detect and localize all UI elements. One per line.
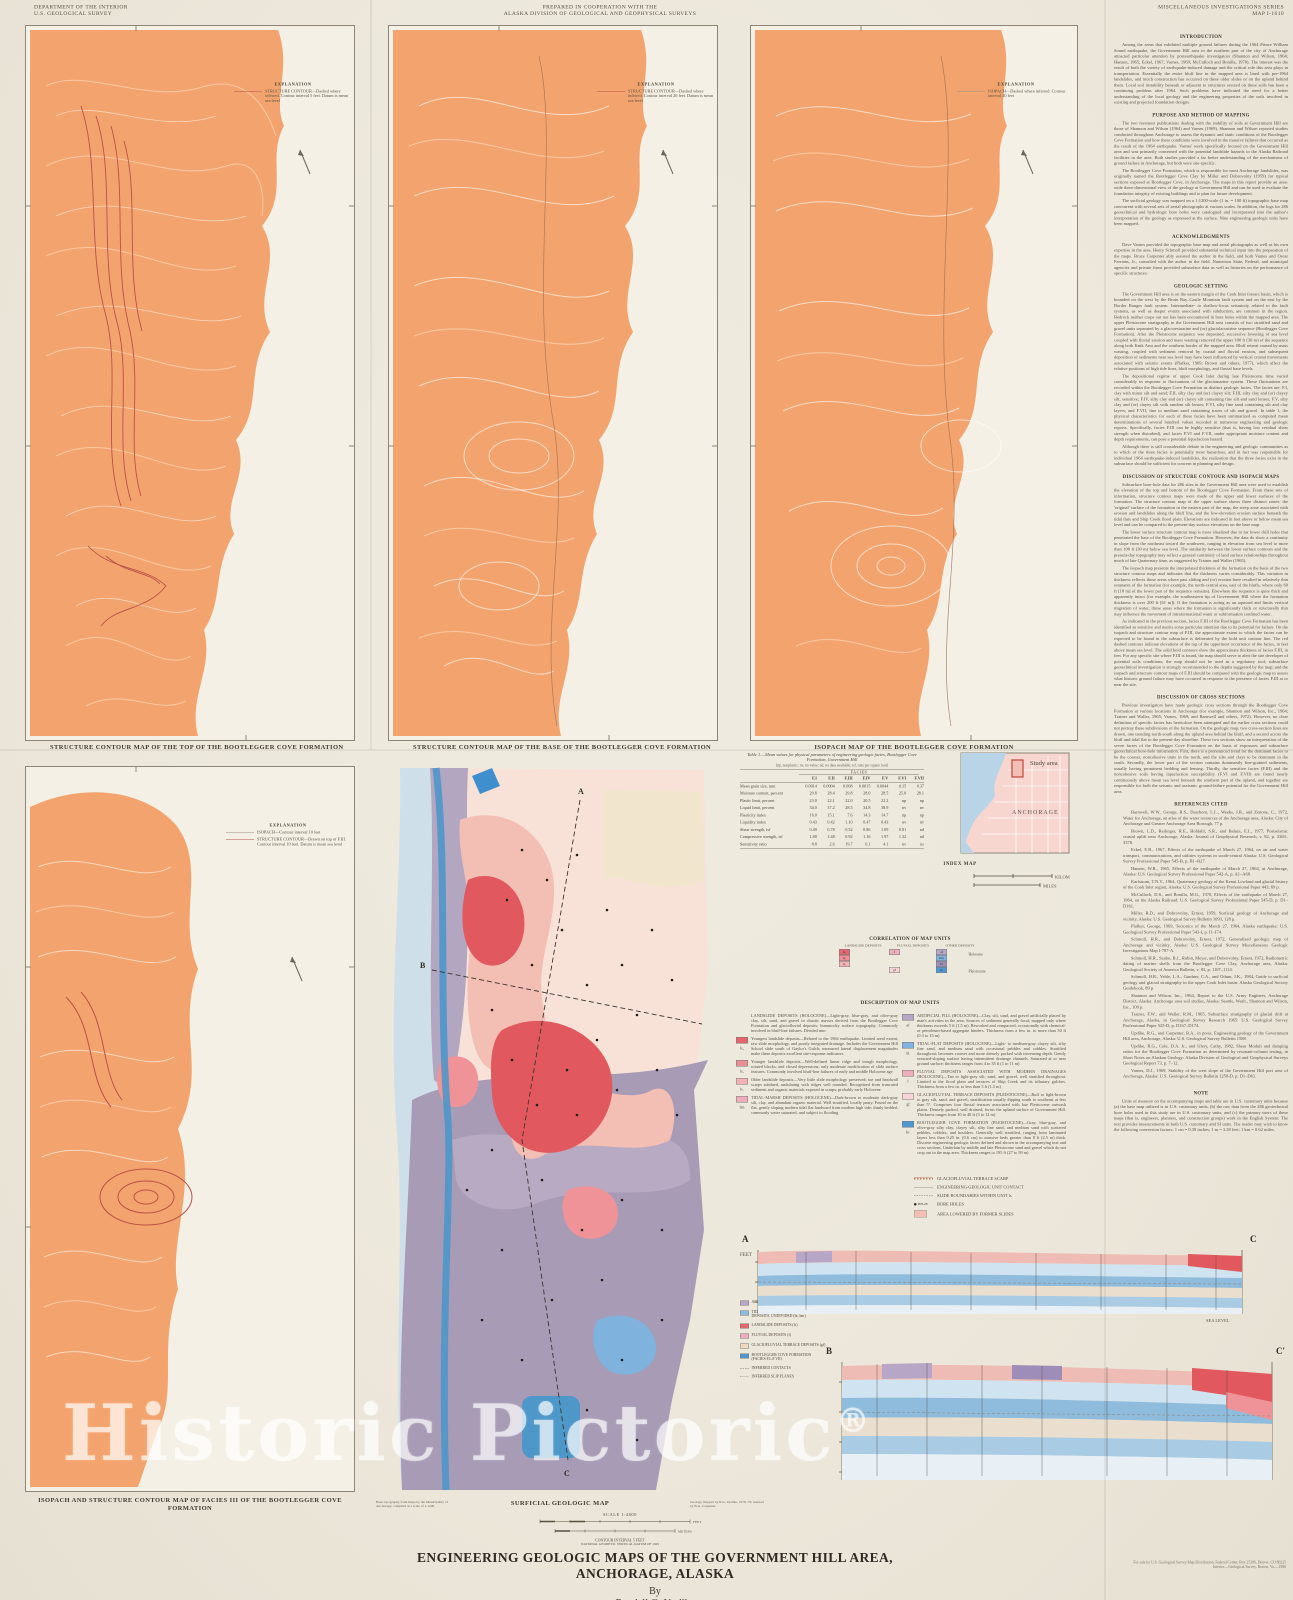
cs-legend-entry: FLUVIAL DEPOSITS (f): [740, 1333, 826, 1339]
map-number: MAP I-1610: [1000, 11, 1284, 18]
explanation-text: STRUCTURE CONTOUR—Dashed where inferred.…: [262, 89, 352, 103]
map4-graphic: [26, 767, 354, 1491]
unit-chip: [902, 1121, 914, 1128]
cs-legend-entry: GLACIOFLUVIAL TERRACE DEPOSITS (gf): [740, 1343, 826, 1349]
unit-symbol: gf: [902, 1102, 914, 1107]
section-paragraph: The isopach map presents the interpolate…: [1114, 565, 1288, 617]
bore-hole-id: BH-28: [918, 1202, 928, 1206]
legend-label: BORE HOLES: [937, 1202, 964, 1207]
structure-contour-base-map: EXPLANATION STRUCTURE CONTOUR—Dashed whe…: [388, 25, 718, 741]
reference-entry: Schmoll, H.R., Yehle, L.A., Gardner, C.A…: [1114, 974, 1288, 991]
legend-lowered-area: AREA LOWERED BY FORMER SLIDES: [914, 1210, 1084, 1218]
reference-entry: Shannon and Wilson, Inc., 1964, Report t…: [1114, 993, 1288, 1010]
index-map: Study area ANCHORAGE INDEX MAP KILOMETER…: [960, 752, 1125, 897]
table1-note: [np, nonplastic; nv, no value; nd, no da…: [740, 763, 924, 768]
unit-chip: [740, 1343, 749, 1348]
svg-text:METERS: METERS: [678, 1530, 692, 1534]
unit-symbol: af: [902, 1023, 914, 1028]
cross-section-1: A C FEET SEA LEVEL: [736, 1226, 1264, 1331]
reference-entry: Plafker, George, 1969, Tectonics of the …: [1114, 924, 1288, 936]
sea-level-label: SEA LEVEL: [1206, 1318, 1230, 1323]
city-label: ANCHORAGE: [1012, 810, 1059, 816]
legend-contact: ENGINEERING-GEOLOGIC UNIT CONTACT: [914, 1185, 1084, 1190]
section-endpoint-a: A: [578, 787, 584, 796]
explanation-heading: EXPLANATION: [957, 82, 1075, 87]
map-unit-entry: ls₂ Younger landslide deposits—Well-defi…: [736, 1059, 898, 1074]
legend-label: AREA LOWERED BY FORMER SLIDES: [937, 1211, 1014, 1216]
correlation-heading: CORRELATION OF MAP UNITS: [820, 936, 1000, 942]
table-row: Liquid limit, percent 34.037.2 28.534.8 …: [740, 805, 924, 812]
note-text: Units of measure on the accompanying map…: [1114, 1098, 1288, 1133]
unit-chip: f: [889, 949, 900, 955]
axis-feet-label: FEET: [740, 1253, 752, 1258]
table-row: Plasticity index 16.015.1 7.614.3 14.7np…: [740, 812, 924, 819]
map-unit-entry: ls₃ Youngest landslide deposits—Related …: [736, 1036, 898, 1056]
table1-title-line2: Formation, Government Hill: [740, 757, 924, 762]
lowered-area-symbol: [914, 1210, 927, 1218]
unit-description: TIDAL-MARSH DEPOSITS (HOLOCENE)—Dark-bro…: [751, 1095, 898, 1115]
table1-header-row: F.IF.II F.IIIF.IV F.VF.VI F.VII: [740, 775, 924, 782]
reference-entry: Schmoll, H.R., Szabo, B.J., Rubin, Meyer…: [1114, 955, 1288, 972]
text-column: INTRODUCTIONAmong the areas that exhibit…: [1114, 20, 1288, 1270]
reference-entry: Karlstrom, T.N.V., 1964, Quaternary geol…: [1114, 879, 1288, 891]
fold-crease-vertical: [370, 0, 372, 750]
legend-label: SLIDE BOUNDARIES WITHIN UNIT ls: [937, 1193, 1012, 1198]
legend-slide-boundary: SLIDE BOUNDARIES WITHIN UNIT ls: [914, 1193, 1084, 1198]
table-row: Mean grain size, mm 0.00140.0004 0.0080.…: [740, 783, 924, 790]
structure-contour-symbol: [234, 91, 262, 92]
reference-entry: Schmoll, H.R., and Dobrovolny, Ernest, 1…: [1114, 937, 1288, 954]
unit-chip: bc: [936, 967, 947, 973]
correlation-block: CORRELATION OF MAP UNITS LANDSLIDE DEPOS…: [820, 936, 1000, 1010]
legend-label: GLACIOFLUVIAL TERRACE SCARP: [937, 1176, 1008, 1181]
description-heading: DESCRIPTION OF MAP UNITS: [770, 1000, 1030, 1011]
unit-description: ARTIFICIAL FILL (HOLOCENE)—Clay, silt, s…: [917, 1013, 1066, 1038]
table-row: Plastic limit, percent 23.022.1 22.020.5…: [740, 797, 924, 804]
group-fluvial: FLUVIAL DEPOSITS: [893, 944, 933, 948]
map4-explanation: EXPLANATION ISOPACH—Contour interval 10 …: [226, 823, 350, 875]
map-unit-entry: ls₁ Older landslide deposits—Very little…: [736, 1077, 898, 1092]
unit-description: Younger landslide deposits—Well-defined …: [751, 1059, 898, 1074]
reference-entry: Varnes, D.J., 1969, Stability of the wes…: [1114, 1068, 1288, 1080]
reference-entry: Updike, R.G., and Carpenter, B.A., in pr…: [1114, 1030, 1288, 1042]
unit-symbol: ht: [902, 1051, 914, 1056]
section1-left-label: A: [742, 1234, 749, 1244]
north-arrow-icon: [296, 146, 314, 176]
section-heading: ACKNOWLEDGMENTS: [1114, 234, 1288, 240]
sheet-title: ENGINEERING GEOLOGIC MAPS OF THE GOVERNM…: [380, 1550, 930, 1582]
unit-chip: [740, 1353, 749, 1358]
unit-description: FLUVIAL DEPOSITS ASSOCIATED WITH MODERN …: [917, 1069, 1066, 1089]
section-paragraph: The depositional regime of upper Cook In…: [1114, 373, 1288, 442]
map-unit-entry: ht TIDAL-FLAT DEPOSITS (HOLOCENE)—Light-…: [902, 1041, 1066, 1066]
watermark: Historic Pictoric®: [62, 1388, 873, 1479]
reference-entry: Miller, R.D., and Dobrovolny, Ernest, 19…: [1114, 911, 1288, 923]
scale-bar-feet: FEET: [530, 1518, 710, 1525]
base-credit: Base topography from maps by the Municip…: [376, 1500, 448, 1516]
reference-entry: Updike, R.G., Cole, D.A. Jr., and Ulery,…: [1114, 1043, 1288, 1066]
note-heading: NOTE: [1114, 1090, 1288, 1096]
era-pleistocene: Pleistocene: [969, 969, 986, 974]
reference-entry: Barnwell, W.W., George, R.S., Dearborn, …: [1114, 810, 1288, 827]
scale-text: SCALE 1:4800: [520, 1512, 720, 1517]
legend-bore-holes: BH-28 BORE HOLES: [914, 1202, 1084, 1207]
unit-description: BOOTLEGGER COVE FORMATION (PLEISTOCENE)—…: [917, 1120, 1066, 1155]
unit-description: TIDAL-FLAT DEPOSITS (HOLOCENE)—Light- to…: [917, 1041, 1066, 1066]
reference-entry: Trainer, F.W., and Waller, R.M., 1965, S…: [1114, 1012, 1288, 1029]
section-paragraph: Although there is still considerable deb…: [1114, 444, 1288, 467]
section-endpoint-b: B: [420, 961, 426, 970]
era-holocene: Holocene: [969, 952, 983, 957]
cs-legend-contacts: INFERRED CONTACTS: [740, 1366, 826, 1370]
unit-chip: [902, 1042, 914, 1049]
isopach-map: EXPLANATION ISOPACH—Dashed where inferre…: [750, 25, 1078, 741]
explanation-text: ISOPACH—Dashed where inferred. Contour i…: [985, 89, 1075, 99]
terrace-scarp-symbol: [914, 1178, 933, 1180]
references-list: Barnwell, W.W., George, R.S., Dearborn, …: [1114, 810, 1288, 1080]
map-unit-entry: f FLUVIAL DEPOSITS ASSOCIATED WITH MODER…: [902, 1069, 1066, 1089]
structure-contour-symbol: [226, 839, 254, 840]
fold-crease-horizontal: [0, 749, 1293, 751]
facies3-map: EXPLANATION ISOPACH—Contour interval 10 …: [25, 766, 355, 1492]
structure-contour-symbol: [597, 91, 625, 92]
table-row: Shear strength, tsf 0.490.78 0.520.86 1.…: [740, 826, 924, 833]
unit-chip: gf: [889, 967, 900, 973]
slip-plane-symbol: [740, 1377, 749, 1378]
structure-contour-top-map: EXPLANATION STRUCTURE CONTOUR—Dashed whe…: [25, 25, 355, 741]
watermark-text: Historic Pictoric: [62, 1388, 836, 1479]
cs-legend-label: BOOTLEGGER COVE FORMATION (FACIES F.I–F.…: [752, 1353, 827, 1361]
study-area-box: [1012, 760, 1023, 777]
section2-left-label: B: [826, 1346, 832, 1356]
imprint-line2: Interior—Geological Survey, Reston, Va.—…: [990, 1565, 1286, 1570]
section-paragraph: Subsurface bore-hole data for 286 sites …: [1114, 482, 1288, 528]
table-row: Liquidity index 0.430.42 1.100.47 0.43nv…: [740, 819, 924, 826]
isopach-symbol: [226, 832, 254, 833]
unit-chip: ls₁: [839, 961, 850, 967]
index-map-caption: INDEX MAP: [960, 861, 1125, 872]
map-sheet: DEPARTMENT OF THE INTERIOR U.S. GEOLOGIC…: [0, 0, 1293, 1600]
title-block: ENGINEERING GEOLOGIC MAPS OF THE GOVERNM…: [380, 1550, 930, 1600]
explanation-text: STRUCTURE CONTOUR—Dashed where inferred.…: [625, 89, 715, 103]
group-other: OTHER DEPOSITS: [940, 944, 980, 948]
map1-explanation: EXPLANATION STRUCTURE CONTOUR—Dashed whe…: [234, 82, 352, 129]
unit-symbol: f: [902, 1079, 914, 1084]
map4-caption: ISOPACH AND STRUCTURE CONTOUR MAP OF FAC…: [30, 1496, 350, 1528]
section-paragraph: The lower surface structure contour map …: [1114, 529, 1288, 564]
map-unit-entry: bc BOOTLEGGER COVE FORMATION (PLEISTOCEN…: [902, 1120, 1066, 1155]
imprint: For sale by U.S. Geological Survey Map D…: [990, 1560, 1286, 1578]
unit-description: LANDSLIDE DEPOSITS (HOLOCENE)—Light-gray…: [751, 1013, 898, 1033]
map3-explanation: EXPLANATION ISOPACH—Dashed where inferre…: [957, 82, 1075, 120]
unit-chip: [902, 1014, 914, 1021]
unit-description: Older landslide deposits—Very little sli…: [751, 1077, 898, 1092]
section-paragraph: The surficial geology was mapped on a 1:…: [1114, 198, 1288, 227]
text-sections: INTRODUCTIONAmong the areas that exhibit…: [1114, 34, 1288, 795]
north-arrow-icon: [659, 146, 677, 176]
legend-label: ENGINEERING-GEOLOGIC UNIT CONTACT: [937, 1185, 1024, 1190]
cs-legend-label: GLACIOFLUVIAL TERRACE DEPOSITS (gf): [752, 1343, 826, 1347]
description-left-column: LANDSLIDE DEPOSITS (HOLOCENE)—Light-gray…: [736, 1013, 898, 1223]
explanation-heading: EXPLANATION: [226, 823, 350, 828]
unit-chip: [902, 1070, 914, 1077]
section-heading: PURPOSE AND METHOD OF MAPPING: [1114, 112, 1288, 118]
north-arrow-icon: [288, 953, 306, 983]
map2-caption: STRUCTURE CONTOUR MAP OF THE BASE OF THE…: [413, 743, 693, 759]
landslide-chips: ls₃ls₂ls₁: [822, 949, 868, 973]
section2-right-label: C': [1276, 1346, 1285, 1356]
cs-legend-slip: INFERRED SLIP PLANES: [740, 1375, 826, 1379]
unit-description: GLACIOFLUVIAL TERRACE DEPOSITS (PLEISTOC…: [917, 1092, 1066, 1117]
cs-legend-entry: BOOTLEGGER COVE FORMATION (FACIES F.I–F.…: [740, 1353, 826, 1361]
table-row: Moisture content, percent 29.828.4 29.82…: [740, 790, 924, 797]
reference-entry: Hansen, W.R., 1965, Effects of the earth…: [1114, 866, 1288, 878]
explanation-heading: EXPLANATION: [234, 82, 352, 87]
section-heading: GEOLOGIC SETTING: [1114, 283, 1288, 289]
section-heading: INTRODUCTION: [1114, 34, 1288, 40]
inferred-contact-symbol: [740, 1368, 749, 1369]
map-unit-entry: gf GLACIOFLUVIAL TERRACE DEPOSITS (PLEIS…: [902, 1092, 1066, 1117]
other-chips: afhmhtbc: [922, 949, 962, 973]
section-heading: DISCUSSION OF CROSS SECTIONS: [1114, 695, 1288, 701]
svg-text:KILOMETERS: KILOMETERS: [1055, 875, 1070, 880]
section-paragraph: Dave Varnes provided the topographic bas…: [1114, 242, 1288, 277]
survey-line: U.S. GEOLOGICAL SURVEY: [34, 11, 434, 18]
explanation-heading: EXPLANATION: [597, 82, 715, 87]
cross-section-2: B C': [822, 1332, 1292, 1497]
study-area-label: Study area: [1030, 760, 1058, 767]
section-paragraph: As indicated in the previous section, fa…: [1114, 619, 1288, 688]
unit-chip: [740, 1333, 749, 1338]
map3-graphic: [751, 26, 1077, 740]
index-map-scale: KILOMETERS MILES: [960, 872, 1070, 892]
unit-contact-symbol: [914, 1187, 933, 1188]
reference-entry: McCulloch, D.S., and Bonilla, M.G., 1970…: [1114, 892, 1288, 909]
isopach-symbol: [957, 91, 985, 92]
legend-scarp: GLACIOFLUVIAL TERRACE SCARP: [914, 1176, 1084, 1181]
fold-crease-vertical: [1104, 0, 1106, 1600]
section1-right-label: C: [1250, 1234, 1257, 1244]
map-unit-entry: hm TIDAL-MARSH DEPOSITS (HOLOCENE)—Dark-…: [736, 1095, 898, 1115]
section-heading: DISCUSSION OF STRUCTURE CONTOUR AND ISOP…: [1114, 474, 1288, 480]
table1: Table 1.—Mean values for physical parame…: [740, 752, 924, 946]
map-unit-entry: LANDSLIDE DEPOSITS (HOLOCENE)—Light-gray…: [736, 1013, 898, 1033]
map1-graphic: [26, 26, 354, 740]
section-paragraph: The Government Hill area is on the easte…: [1114, 291, 1288, 372]
bore-hole-symbol: [914, 1203, 917, 1206]
group-landslide: LANDSLIDE DEPOSITS: [840, 944, 886, 948]
references-heading: REFERENCES CITED: [1114, 802, 1288, 808]
north-arrow-icon: [1019, 146, 1037, 176]
reference-entry: Eckel, E.B., 1967, Effects of the earthq…: [1114, 847, 1288, 864]
cs-legend-label: INFERRED CONTACTS: [752, 1366, 791, 1370]
section-paragraph: The two foremost publications dealing wi…: [1114, 120, 1288, 166]
unit-chip: [902, 1093, 914, 1100]
explanation-text: STRUCTURE CONTOUR—Drawn on top of F.III.…: [254, 837, 350, 847]
scale-bar-meters: METERS: [530, 1528, 710, 1535]
datum-line: NATIONAL GEODETIC VERTICAL DATUM OF 1929: [520, 1543, 720, 1547]
table-row: Sensitivity ratio 8.82.6 19.76.1 4.1nv n…: [740, 841, 924, 848]
byline: By: [380, 1586, 930, 1597]
reference-entry: Brown, L.D., Reilinger, R.E., Holdahl, S…: [1114, 828, 1288, 845]
table1-body: Mean grain size, mm 0.00140.0004 0.0080.…: [740, 782, 924, 848]
map2-graphic: [389, 26, 717, 740]
unit-description: Youngest landslide deposits—Related to t…: [751, 1036, 898, 1056]
svg-text:MILES: MILES: [1043, 884, 1057, 889]
registered-icon: ®: [836, 1401, 873, 1441]
map2-explanation: EXPLANATION STRUCTURE CONTOUR—Dashed whe…: [597, 82, 715, 129]
explanation-text: ISOPACH—Contour interval 10 feet: [254, 830, 350, 835]
cs-legend-label: FLUVIAL DEPOSITS (f): [752, 1333, 792, 1337]
svg-text:FEET: FEET: [693, 1520, 702, 1524]
map-unit-entry: af ARTIFICIAL FILL (HOLOCENE)—Clay, silt…: [902, 1013, 1066, 1038]
cooperation-line2: ALASKA DIVISION OF GEOLOGICAL AND GEOPHY…: [420, 11, 780, 18]
table-row: Compressive strength, tsf 1.801.48 0.921…: [740, 834, 924, 841]
section-paragraph: Among the areas that exhibited multiple …: [1114, 42, 1288, 105]
cs-legend-label: INFERRED SLIP PLANES: [752, 1375, 794, 1379]
unit-symbol: bc: [902, 1130, 914, 1135]
slide-boundary-symbol: [914, 1195, 933, 1196]
map1-caption: STRUCTURE CONTOUR MAP OF THE TOP OF THE …: [50, 743, 330, 759]
section-paragraph: The Bootlegger Cove Formation, which is …: [1114, 168, 1288, 197]
